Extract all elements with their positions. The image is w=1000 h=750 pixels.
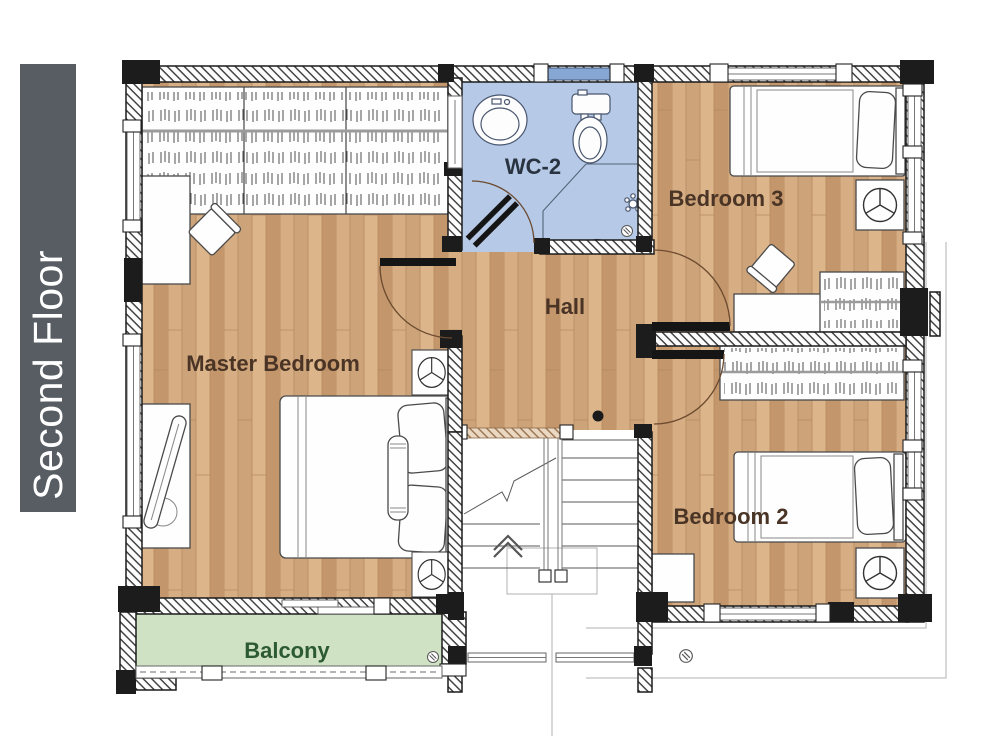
room-label-bedroom3: Bedroom 3 (669, 186, 784, 211)
floor-plan-drawing: Master Bedroom WC-2 Hall Bedroom 3 Bedro… (0, 0, 1000, 750)
single-bed (730, 86, 906, 176)
room-label-wc2: WC-2 (505, 154, 561, 179)
floor-drain-icon (680, 650, 693, 663)
headboard (896, 88, 905, 174)
room-label-bedroom2: Bedroom 2 (674, 504, 789, 529)
floor-plan-page: Second Floor (0, 0, 1000, 750)
wall-bedroom-divider (654, 332, 906, 346)
double-bed (280, 396, 454, 558)
bedroom3-door-leaf (652, 322, 730, 331)
ceiling-fan-icon (412, 350, 451, 395)
room-label-balcony: Balcony (244, 638, 330, 663)
hall-marker-dot (593, 411, 604, 422)
sink-icon (473, 95, 527, 145)
desk (734, 294, 822, 332)
floor-drain-icon (428, 652, 439, 663)
bolster (388, 436, 408, 520)
pillow (856, 91, 896, 169)
master-door-leaf (380, 258, 456, 266)
vanity-dresser (140, 404, 190, 548)
floor-drain-icon (622, 226, 633, 237)
bedroom2-door-leaf (652, 350, 724, 359)
wall-master-east (448, 336, 462, 432)
room-label-master-bedroom: Master Bedroom (186, 351, 360, 376)
wardrobe (720, 344, 904, 400)
wardrobe (820, 272, 904, 332)
stair-opening-edge (458, 428, 568, 438)
ceiling-fan-icon (412, 552, 451, 597)
toilet-icon (572, 90, 610, 163)
headboard (894, 454, 903, 540)
room-label-hall: Hall (545, 294, 585, 319)
ceiling-fan-icon (856, 180, 904, 230)
stairwell-floor (462, 430, 638, 660)
wall-wc-east (638, 78, 652, 250)
clothes-rail-icon (146, 92, 444, 208)
wc-window (546, 68, 610, 80)
ceiling-fan-icon (856, 548, 904, 598)
pillow (854, 457, 894, 535)
